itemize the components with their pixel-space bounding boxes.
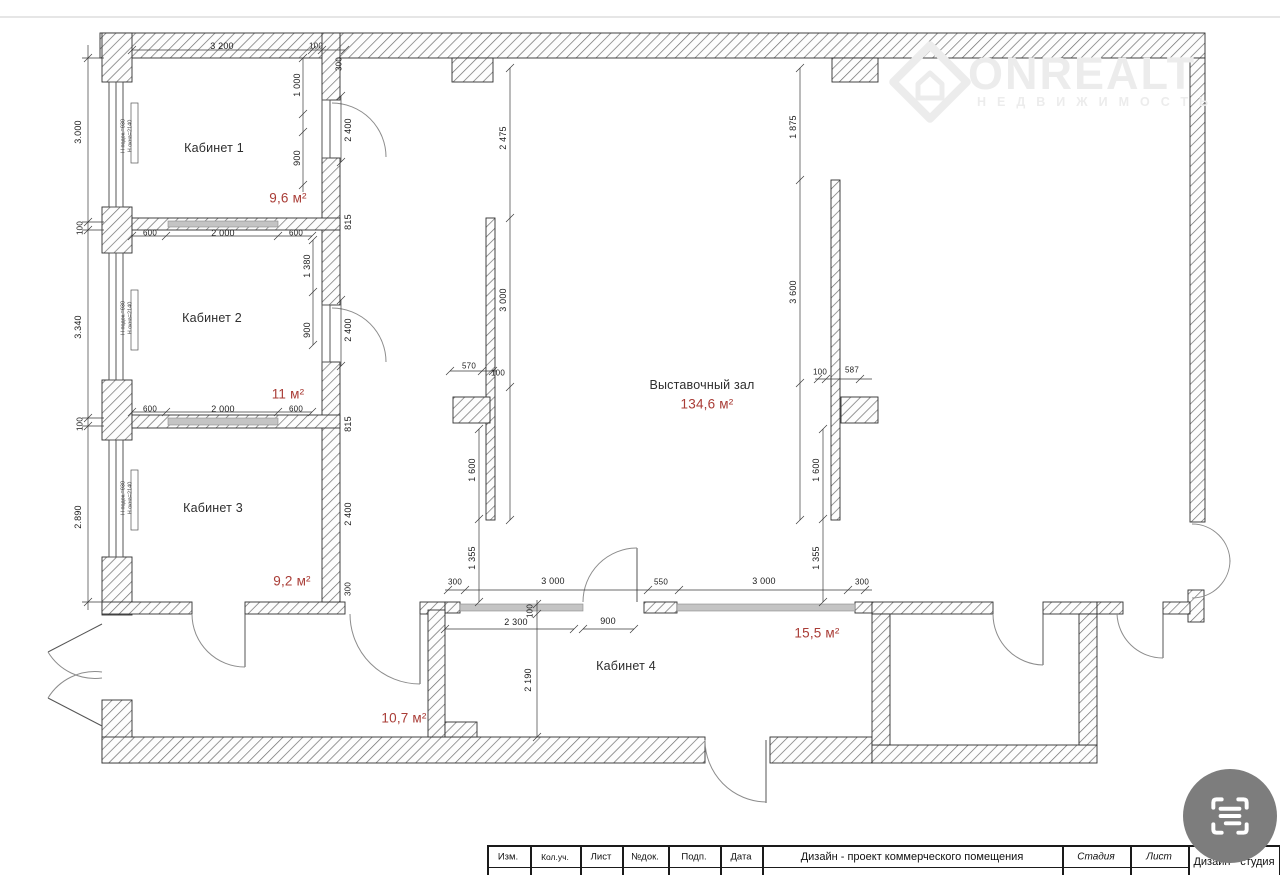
doors — [48, 100, 1230, 803]
house-icon — [888, 40, 972, 124]
dim-label: 900 — [302, 322, 312, 338]
dim-label: 100 — [526, 604, 535, 618]
dim-label: 1 380 — [302, 254, 312, 278]
room-area-cab3: 9,2 м² — [273, 574, 311, 589]
dim-label: 600 — [143, 229, 157, 238]
tb-col-ndok: №док. — [631, 852, 659, 863]
dim-label: 2 400 — [343, 318, 353, 342]
window-note: Н подок.=930Н окна=2140 — [121, 481, 134, 515]
dim-label: 3 000 — [498, 288, 508, 312]
dim-label: 300 — [344, 582, 353, 596]
room-name-cab2: Кабинет 2 — [182, 311, 242, 325]
dim-label: 300 — [448, 578, 462, 587]
dim-label: 3.340 — [73, 315, 83, 339]
dim-label: 100 — [491, 369, 505, 378]
dim-label: 900 — [292, 150, 302, 166]
dim-label: 3.000 — [73, 120, 83, 144]
dim-label: 2 300 — [504, 617, 528, 627]
dim-label: 3 000 — [752, 576, 776, 586]
dim-label: 300 — [855, 578, 869, 587]
dim-label: 2 475 — [498, 126, 508, 150]
tb-col-podp: Подп. — [681, 852, 706, 863]
dim-label: 100 — [309, 42, 323, 51]
room-area-hall: 134,6 м² — [681, 397, 734, 412]
title-block-row-divider — [487, 867, 1188, 868]
dim-label: 815 — [343, 214, 353, 230]
dim-label: 3 600 — [788, 280, 798, 304]
floor-plan-page: ONREALT НЕДВИЖИМОСТЬ 3.000 100 3.340 100… — [0, 0, 1280, 875]
dim-label: 100 — [813, 368, 827, 377]
dim-label: 100 — [76, 417, 85, 431]
dim-label: 1 355 — [811, 546, 821, 570]
dim-label: 2 400 — [343, 118, 353, 142]
dim-label: 1 875 — [788, 115, 798, 139]
dim-label: 1 600 — [467, 458, 477, 482]
window-note: Н подок.=930Н окна=2140 — [121, 119, 134, 153]
dim-label: 900 — [600, 616, 616, 626]
dim-label: 300 — [335, 57, 344, 71]
dim-label: 2 000 — [211, 228, 235, 238]
dim-label: 550 — [654, 578, 668, 587]
room-name-cab3: Кабинет 3 — [183, 501, 243, 515]
dim-label: 587 — [845, 366, 859, 375]
tb-col-izm: Изм. — [498, 852, 518, 863]
room-area-corridor: 10,7 м² — [381, 711, 426, 726]
dim-label: 2 400 — [343, 502, 353, 526]
room-name-hall: Выставочный зал — [649, 378, 754, 392]
window-note: Н подок.=930Н окна=2140 — [121, 301, 134, 335]
dim-label: 600 — [143, 405, 157, 414]
watermark-subtitle: НЕДВИЖИМОСТЬ — [977, 95, 1219, 109]
room-area-cab4: 15,5 м² — [794, 626, 839, 641]
tb-project-title: Дизайн - проект коммерческого помещения — [801, 851, 1024, 863]
dim-label: 570 — [462, 362, 476, 371]
scan-document-icon — [1205, 791, 1255, 841]
dim-label: 815 — [343, 416, 353, 432]
watermark-brand: ONREALT — [968, 48, 1196, 100]
dim-label: 3 000 — [541, 576, 565, 586]
tb-col-koluch: Кол.уч. — [541, 852, 569, 862]
dim-label: 600 — [289, 229, 303, 238]
dim-label: 2.890 — [73, 505, 83, 529]
room-name-cab1: Кабинет 1 — [184, 141, 244, 155]
dim-label: 600 — [289, 405, 303, 414]
scan-button[interactable] — [1183, 769, 1277, 863]
dim-label: 3 200 — [210, 41, 234, 51]
dim-label: 1 000 — [292, 73, 302, 97]
tb-stage-label: Стадия — [1077, 852, 1114, 863]
tb-col-list: Лист — [591, 852, 612, 863]
dim-label: 100 — [76, 221, 85, 235]
walls — [100, 33, 1205, 763]
dim-label: 1 600 — [811, 458, 821, 482]
room-area-cab2: 11 м² — [272, 387, 305, 402]
floor-plan-drawing — [0, 0, 1280, 875]
dim-label: 2 190 — [523, 668, 533, 692]
dim-label: 1 355 — [467, 546, 477, 570]
dim-label: 2 000 — [211, 404, 235, 414]
tb-sheet-label: Лист — [1146, 852, 1172, 863]
room-name-cab4: Кабинет 4 — [596, 659, 656, 673]
tb-col-data: Дата — [730, 852, 751, 863]
room-area-cab1: 9,6 м² — [269, 191, 307, 206]
